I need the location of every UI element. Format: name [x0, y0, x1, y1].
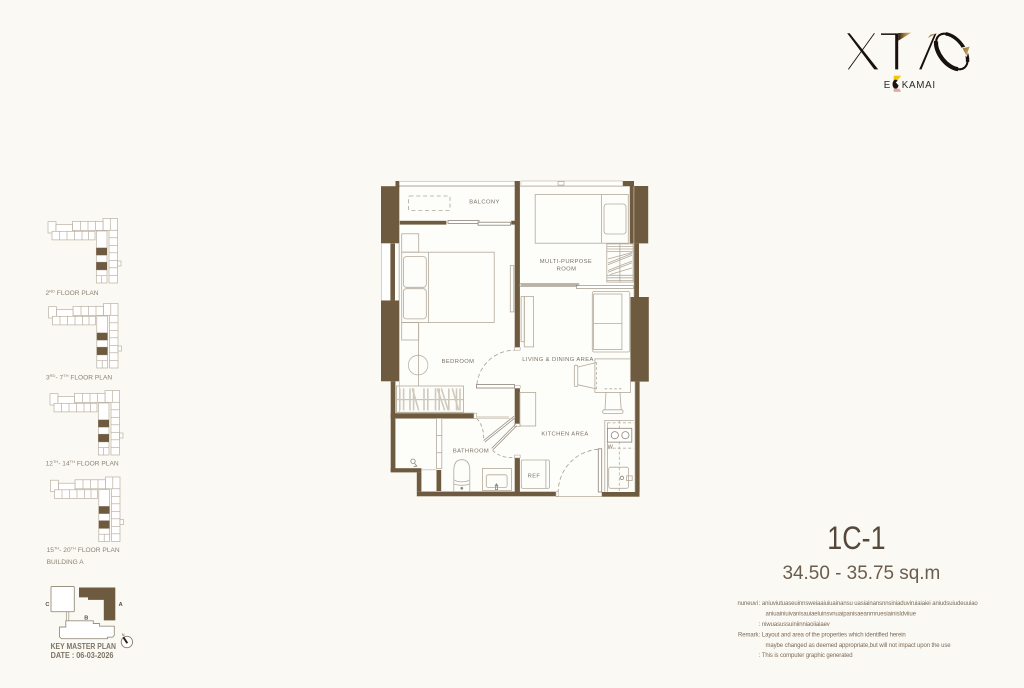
svg-text:MULTI-PURPOSE: MULTI-PURPOSE — [540, 259, 592, 265]
svg-text:ROOM: ROOM — [557, 267, 577, 273]
svg-text:3RD- 7TH FLOOR PLAN: 3RD- 7TH FLOOR PLAN — [46, 373, 112, 381]
svg-text:Remark: Remark — [738, 633, 760, 639]
svg-text:1C-1: 1C-1 — [827, 520, 885, 556]
svg-text:: Layout and area of the prope: : Layout and area of the properties whic… — [759, 633, 906, 639]
svg-text:REF: REF — [528, 473, 541, 479]
svg-text:W: W — [608, 444, 614, 450]
svg-text:C: C — [45, 602, 49, 608]
svg-text:: niwuasussuiniinniaoiiaiaev: : niwuasussuiniinniaoiiaiaev — [759, 622, 830, 628]
svg-text:aniuainiuivanisauiaeluinsvnuai: aniuainiuivanisauiaeluinsvnuaipanisaeanr… — [766, 612, 917, 618]
svg-text:KAMAI: KAMAI — [902, 80, 936, 91]
svg-text:nuneuvi: nuneuvi — [738, 601, 758, 607]
svg-text:BUILDING A: BUILDING A — [47, 559, 85, 566]
svg-text:A: A — [119, 602, 123, 608]
svg-text:BATHROOM: BATHROOM — [453, 448, 489, 454]
svg-text:LIVING & DINING AREA: LIVING & DINING AREA — [522, 357, 593, 363]
svg-text:E: E — [884, 80, 891, 91]
svg-text:: aniuviutuaseuinnsweiaaiuiuai: : aniuviutuaseuinnsweiaaiuiuainansu uasi… — [759, 601, 979, 607]
svg-text:: This is computer graphic gen: : This is computer graphic generated — [759, 653, 853, 659]
svg-text:BALCONY: BALCONY — [469, 200, 500, 206]
svg-text:BEDROOM: BEDROOM — [442, 359, 475, 365]
svg-text:N: N — [122, 633, 125, 637]
svg-text:34.50 - 35.75 sq.m: 34.50 - 35.75 sq.m — [783, 563, 941, 584]
svg-text:maybe changed as deemed approp: maybe changed as deemed appropriate,but … — [766, 643, 952, 649]
svg-text:KITCHEN AREA: KITCHEN AREA — [541, 431, 588, 437]
svg-text:DATE : 06-03-2026: DATE : 06-03-2026 — [51, 650, 114, 660]
